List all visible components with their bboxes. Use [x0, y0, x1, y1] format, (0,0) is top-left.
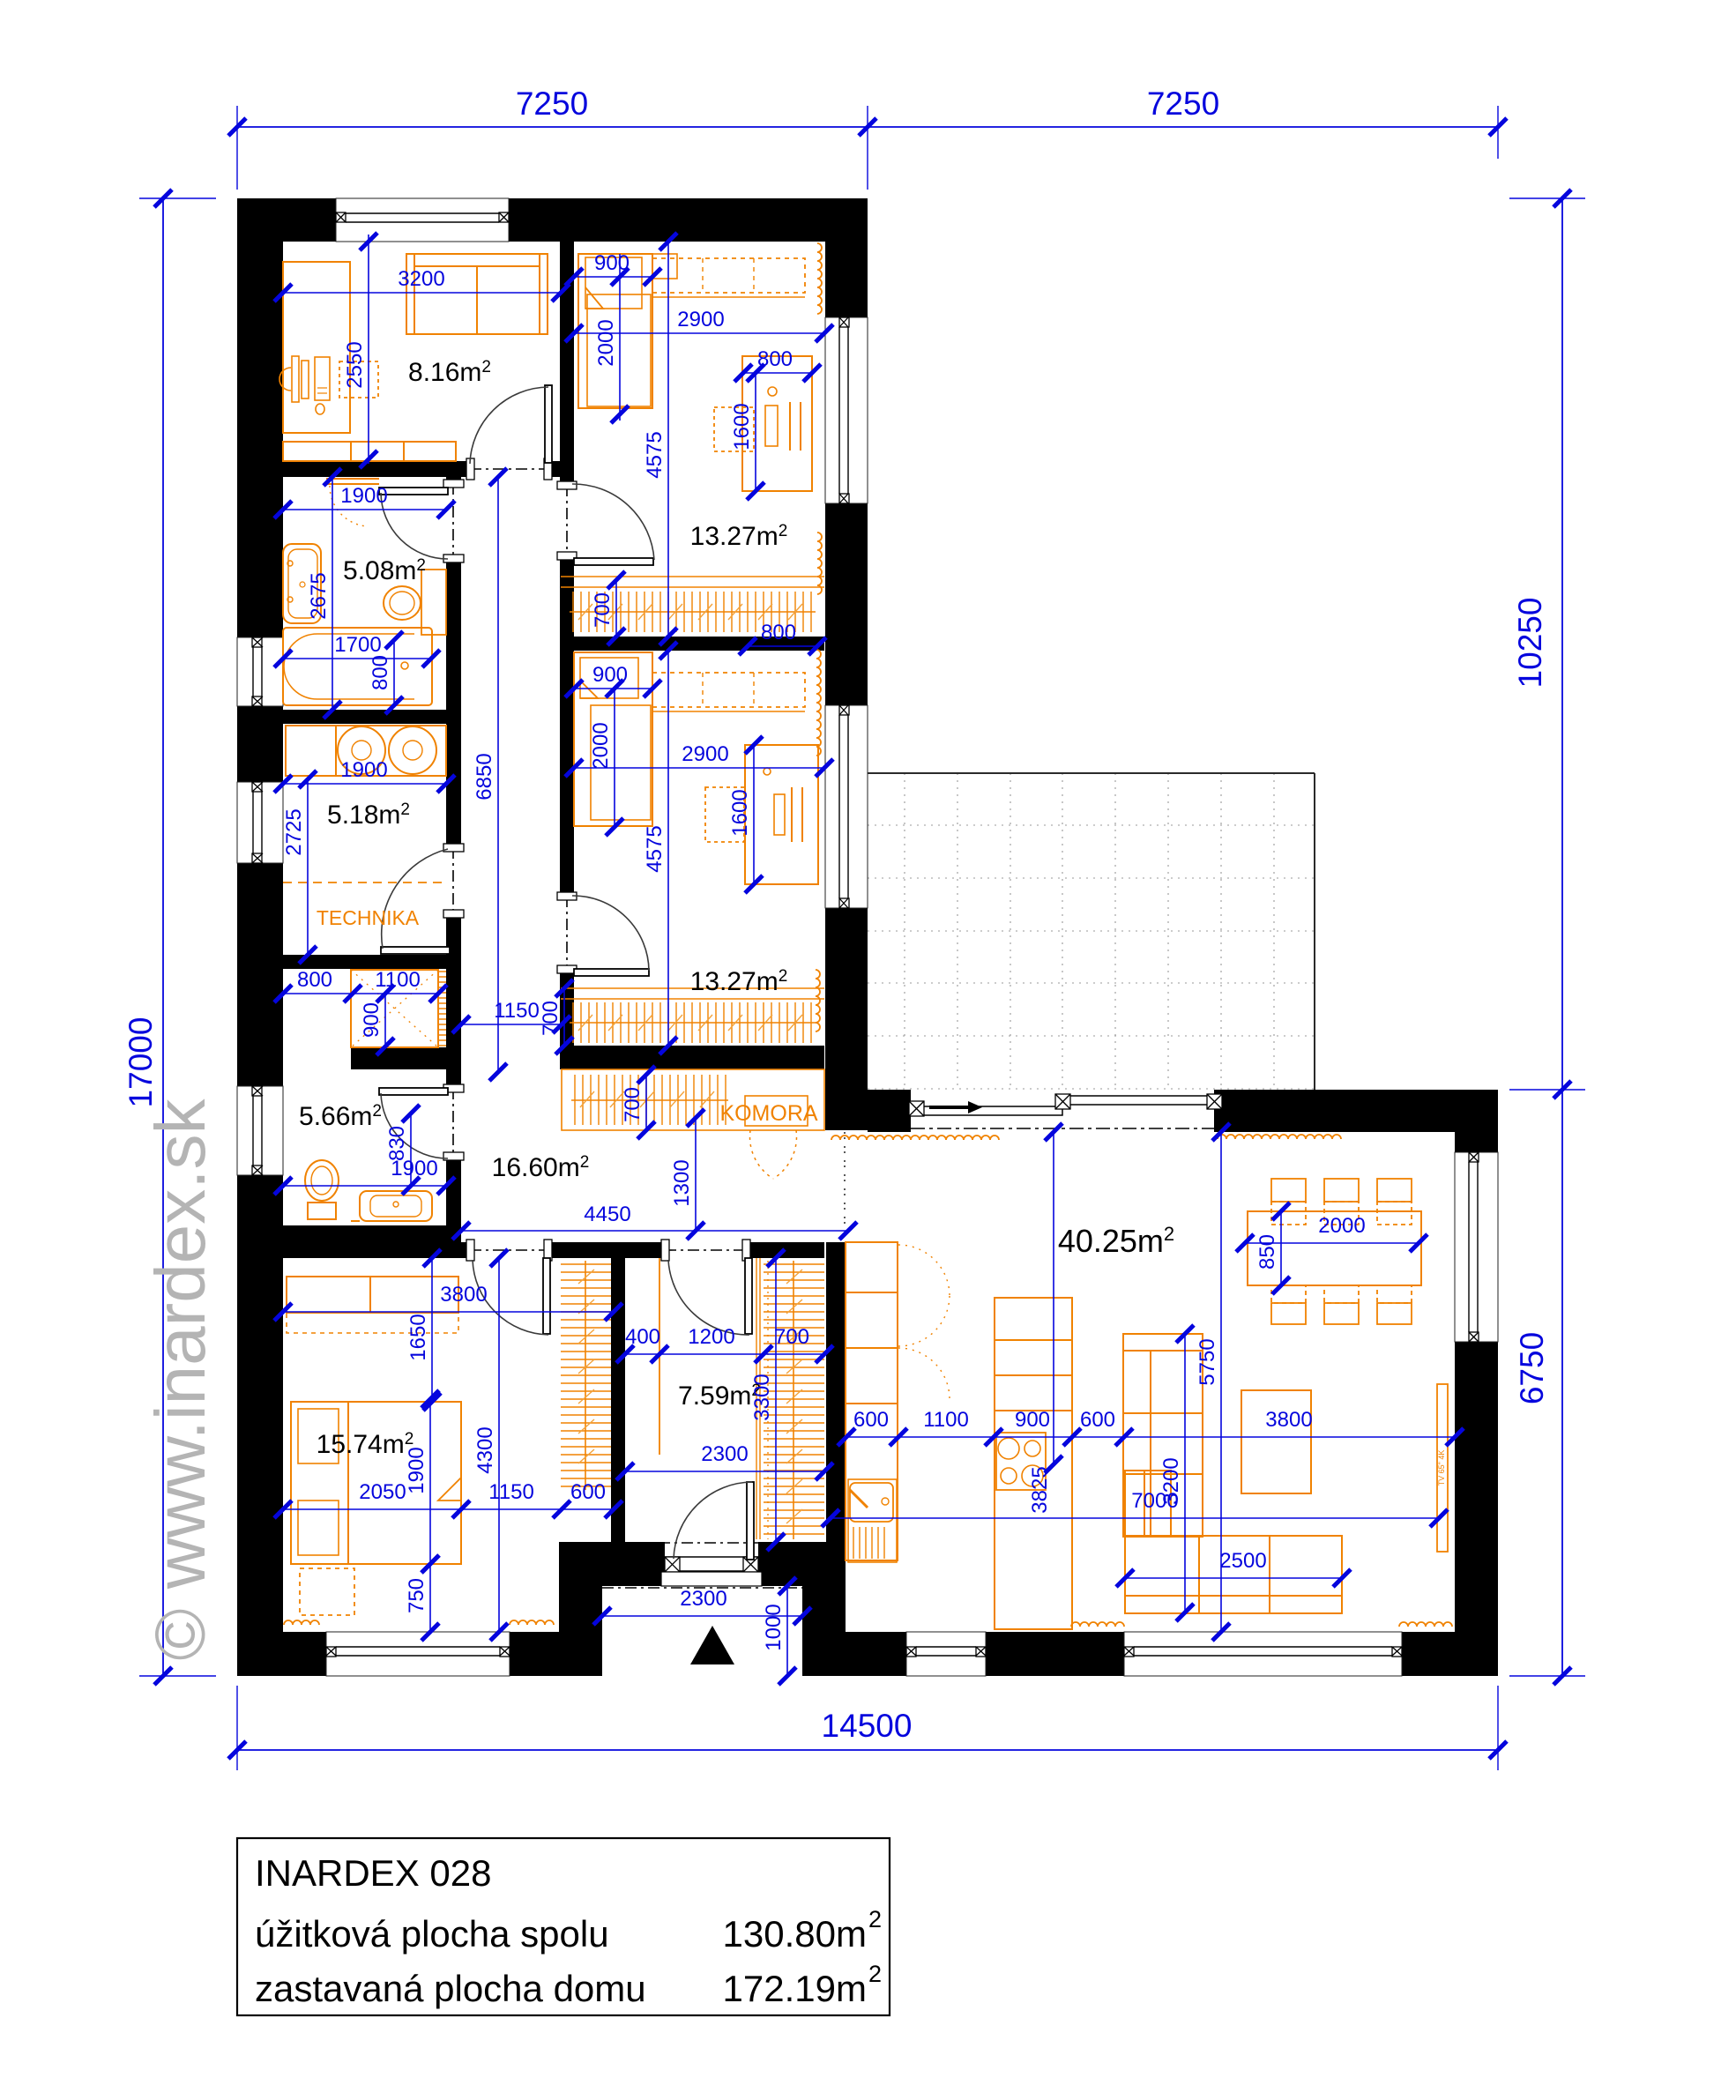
svg-text:700: 700 [621, 1087, 644, 1122]
svg-text:úžitková plocha spolu: úžitková plocha spolu [255, 1913, 609, 1955]
svg-text:800: 800 [297, 968, 332, 992]
svg-text:15.74m2: 15.74m2 [317, 1430, 414, 1459]
svg-text:17000: 17000 [123, 1017, 159, 1108]
svg-text:7000: 7000 [1131, 1489, 1178, 1513]
svg-text:2300: 2300 [680, 1587, 726, 1611]
svg-text:850: 850 [1255, 1234, 1279, 1270]
svg-text:13.27m2: 13.27m2 [690, 522, 788, 551]
svg-text:© www.inardex.sk: © www.inardex.sk [141, 1098, 220, 1661]
svg-text:900: 900 [360, 1002, 384, 1038]
svg-text:2550: 2550 [343, 341, 367, 388]
svg-text:3800: 3800 [440, 1283, 487, 1307]
svg-text:4575: 4575 [643, 825, 667, 872]
svg-text:13.27m2: 13.27m2 [690, 967, 788, 996]
svg-text:2900: 2900 [677, 308, 724, 331]
svg-text:1900: 1900 [340, 484, 387, 508]
svg-text:750: 750 [405, 1578, 428, 1613]
svg-text:2000: 2000 [589, 722, 613, 769]
svg-text:INARDEX 028: INARDEX 028 [255, 1852, 491, 1894]
svg-text:1100: 1100 [375, 968, 421, 992]
svg-text:3300: 3300 [750, 1374, 774, 1420]
svg-text:3800: 3800 [1265, 1408, 1312, 1432]
svg-text:2000: 2000 [1318, 1214, 1365, 1238]
svg-text:1600: 1600 [728, 789, 752, 836]
svg-text:6850: 6850 [473, 753, 496, 800]
svg-text:10250: 10250 [1512, 598, 1548, 689]
svg-text:600: 600 [1080, 1408, 1115, 1432]
svg-text:2675: 2675 [307, 572, 331, 619]
svg-text:3200: 3200 [398, 267, 444, 291]
svg-text:400: 400 [625, 1325, 660, 1349]
svg-text:1150: 1150 [494, 999, 540, 1023]
svg-text:2: 2 [868, 1961, 882, 1987]
svg-text:2725: 2725 [282, 808, 306, 855]
svg-text:4575: 4575 [643, 431, 667, 478]
svg-text:130.80m: 130.80m [723, 1913, 867, 1955]
svg-text:1000: 1000 [762, 1604, 786, 1650]
svg-text:1900: 1900 [405, 1447, 428, 1493]
svg-text:zastavaná plocha domu: zastavaná plocha domu [255, 1968, 646, 2009]
svg-text:800: 800 [761, 621, 796, 644]
svg-text:2000: 2000 [594, 319, 618, 366]
svg-text:2: 2 [868, 1906, 882, 1932]
svg-text:8.16m2: 8.16m2 [408, 358, 491, 387]
svg-text:6750: 6750 [1514, 1332, 1550, 1404]
svg-text:700: 700 [774, 1325, 809, 1349]
svg-text:172.19m: 172.19m [723, 1968, 867, 2009]
svg-text:1100: 1100 [923, 1408, 969, 1432]
svg-text:4300: 4300 [473, 1426, 497, 1473]
svg-text:7250: 7250 [1147, 86, 1219, 122]
svg-text:1650: 1650 [406, 1314, 430, 1360]
svg-text:7.59m2: 7.59m2 [678, 1381, 761, 1411]
svg-text:16.60m2: 16.60m2 [492, 1153, 590, 1182]
svg-text:800: 800 [369, 655, 392, 690]
svg-text:900: 900 [1015, 1408, 1050, 1432]
svg-text:4450: 4450 [584, 1203, 630, 1226]
svg-text:2300: 2300 [701, 1442, 748, 1466]
svg-text:KOMORA: KOMORA [719, 1101, 817, 1126]
svg-text:7250: 7250 [516, 86, 588, 122]
svg-text:600: 600 [853, 1408, 889, 1432]
svg-text:5.08m2: 5.08m2 [343, 556, 426, 585]
svg-text:5.18m2: 5.18m2 [327, 801, 410, 830]
svg-text:TV 65" 4K: TV 65" 4K [1437, 1450, 1446, 1486]
svg-text:1200: 1200 [688, 1325, 734, 1349]
svg-text:5.66m2: 5.66m2 [299, 1102, 382, 1131]
svg-text:700: 700 [539, 1001, 563, 1036]
svg-text:40.25m2: 40.25m2 [1058, 1223, 1174, 1259]
svg-text:700: 700 [591, 592, 615, 628]
svg-text:1900: 1900 [391, 1157, 437, 1180]
svg-text:2900: 2900 [682, 742, 728, 766]
svg-text:1900: 1900 [340, 758, 387, 782]
svg-text:2050: 2050 [359, 1480, 406, 1504]
svg-text:1700: 1700 [334, 633, 381, 657]
svg-text:5750: 5750 [1196, 1338, 1219, 1385]
svg-text:2500: 2500 [1219, 1549, 1266, 1573]
svg-text:1300: 1300 [670, 1159, 694, 1206]
svg-text:TECHNIKA: TECHNIKA [317, 906, 420, 929]
svg-text:1150: 1150 [488, 1480, 534, 1504]
svg-text:1600: 1600 [730, 403, 754, 450]
svg-text:14500: 14500 [822, 1708, 913, 1744]
svg-text:600: 600 [570, 1480, 606, 1504]
svg-text:3825: 3825 [1028, 1466, 1052, 1513]
